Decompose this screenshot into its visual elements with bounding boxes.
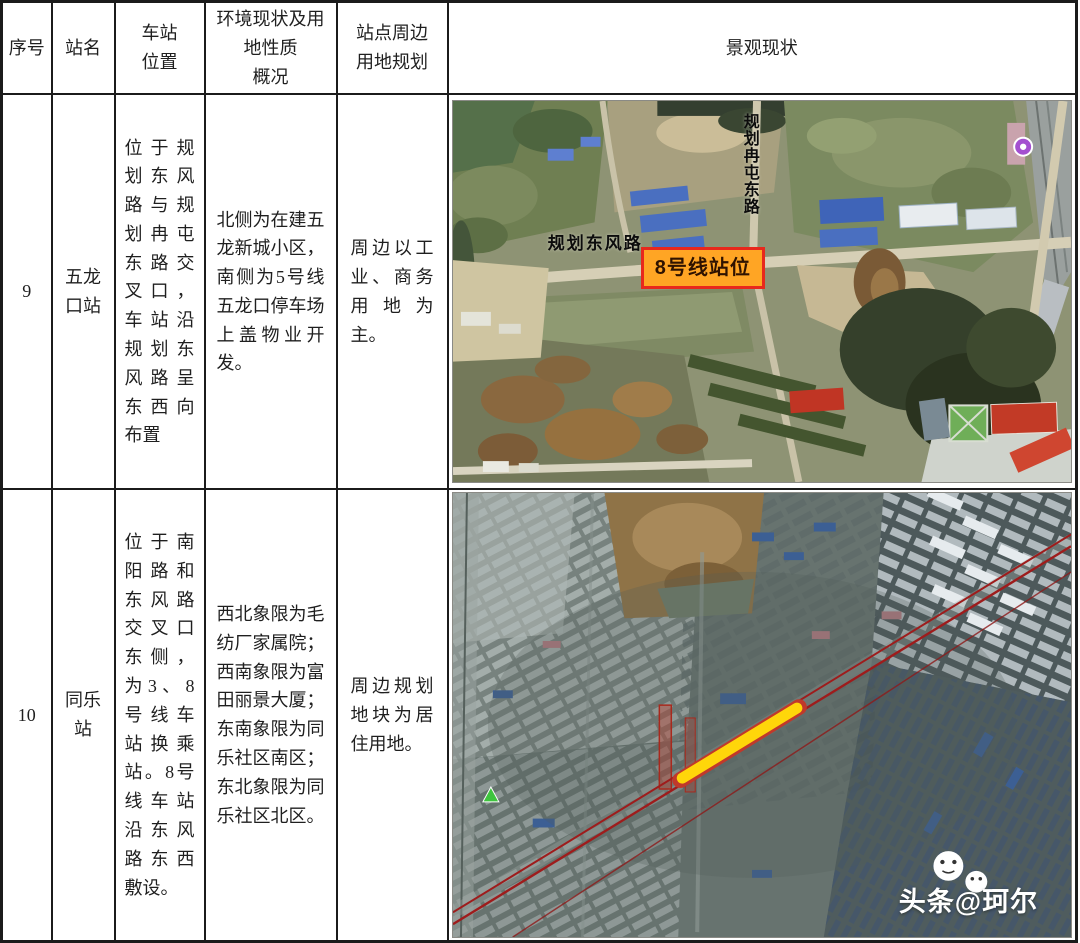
watermark-text: 头条@珂尔	[899, 881, 1038, 924]
header-row: 序号 站名 车站 位置 环境现状及用 地性质 概况 站点周边 用地规划 景观现状	[2, 2, 1077, 95]
cell-landscape-map: 头条@珂尔	[448, 489, 1077, 941]
cell-landscape-map: 规划冉屯东路 规划东风路 8号线站位	[448, 94, 1077, 489]
col-header-landscape: 景观现状	[448, 2, 1077, 95]
cell-no: 10	[2, 489, 52, 941]
col-header-index: 序号	[2, 2, 52, 95]
station-table: 序号 站名 车站 位置 环境现状及用 地性质 概况 站点周边 用地规划 景观现状…	[0, 0, 1078, 943]
line8-station-position-badge: 8号线站位	[641, 247, 765, 289]
col-header-station-name: 站名	[52, 2, 115, 95]
satellite-image-2	[453, 493, 1071, 937]
col-header-environment: 环境现状及用 地性质 概况	[205, 2, 337, 95]
cell-station-name: 同乐站	[52, 489, 115, 941]
cell-location: 位于南阳路和东风路交叉口东侧，为3、8号线车站换乘站。8号线车站沿东风路东西敷设…	[115, 489, 205, 941]
cell-location: 位于规划东风路与规划冉屯东路交叉口，车站沿规划东风路呈东西向布置	[115, 94, 205, 489]
road-label-guihua-dongfeng-road: 规划东风路	[548, 230, 643, 257]
cell-planning: 周边规划地块为居住用地。	[337, 489, 448, 941]
cell-station-name: 五龙口站	[52, 94, 115, 489]
cell-environment: 北侧为在建五龙新城小区，南侧为5号线五龙口停车场上盖物业开发。	[205, 94, 337, 489]
cell-no: 9	[2, 94, 52, 489]
col-header-station-location: 车站 位置	[115, 2, 205, 95]
cell-environment: 西北象限为毛纺厂家属院；西南象限为富田丽景大厦；东南象限为同乐社区南区；东北象限…	[205, 489, 337, 941]
satellite-map-tongle: 头条@珂尔	[452, 492, 1072, 938]
col-header-land-planning: 站点周边 用地规划	[337, 2, 448, 95]
cell-planning: 周边以工业、商务用地为主。	[337, 94, 448, 489]
table-row-station-9: 9 五龙口站 位于规划东风路与规划冉屯东路交叉口，车站沿规划东风路呈东西向布置 …	[2, 94, 1077, 489]
satellite-image-1	[453, 101, 1071, 482]
road-label-guihua-rantun-east-road: 规划冉屯东路	[741, 113, 757, 215]
table-row-station-10: 10 同乐站 位于南阳路和东风路交叉口东侧，为3、8号线车站换乘站。8号线车站沿…	[2, 489, 1077, 941]
map-poi-marker-icon	[1014, 138, 1032, 156]
document-page: 序号 站名 车站 位置 环境现状及用 地性质 概况 站点周边 用地规划 景观现状…	[0, 0, 1080, 943]
satellite-map-wulongkou: 规划冉屯东路 规划东风路 8号线站位	[452, 100, 1072, 483]
